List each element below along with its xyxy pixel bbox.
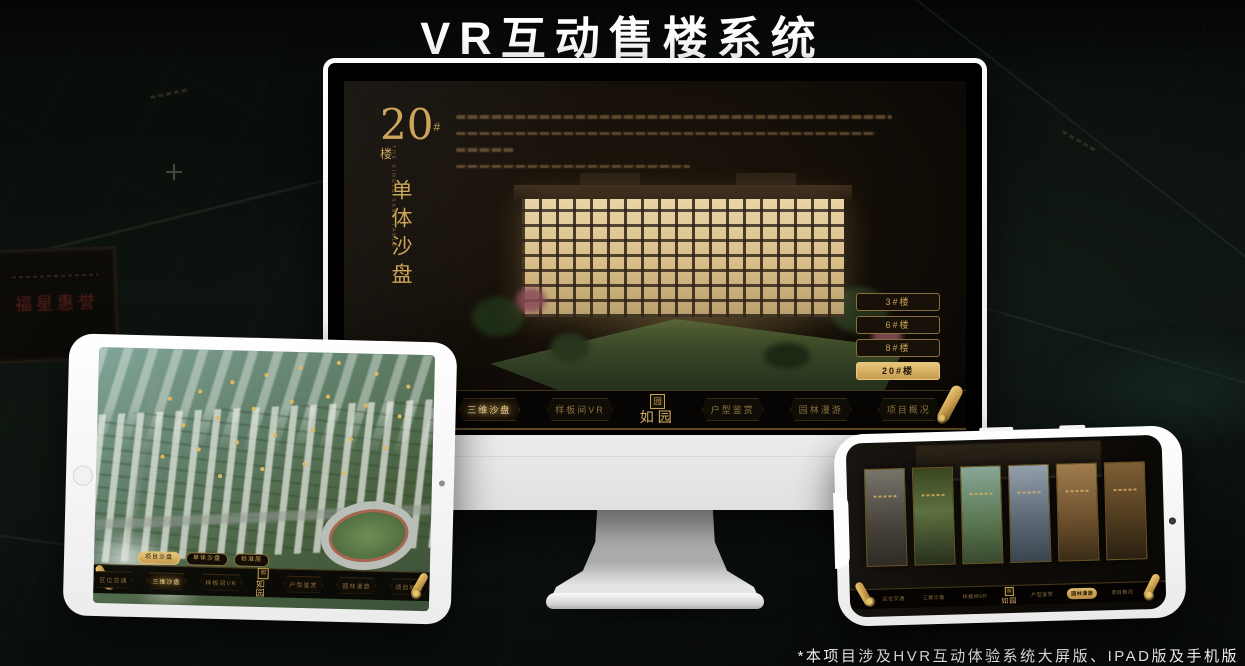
menu-item-showroom-vr[interactable]: 样板间VR bbox=[959, 591, 992, 603]
brand-logo[interactable]: 园 如园 bbox=[255, 567, 270, 598]
menu-item-unit-plans[interactable]: 户型鉴赏 bbox=[1027, 589, 1057, 601]
building-3d-model[interactable] bbox=[522, 199, 844, 317]
brand-seal-icon: 园 bbox=[1004, 586, 1013, 595]
menu-item-garden-roam[interactable]: 园林漫游 bbox=[790, 398, 852, 421]
brand-name: 如园 bbox=[255, 580, 270, 598]
floor-button-20[interactable]: 20#楼 bbox=[856, 362, 940, 380]
phone-volume-button[interactable] bbox=[979, 427, 1013, 432]
floor-button-group: 3#楼 6#楼 8#楼 20#楼 bbox=[856, 293, 940, 380]
building-number-markers[interactable] bbox=[168, 397, 172, 401]
tablet-home-button[interactable] bbox=[73, 465, 93, 485]
promo-page: 福星惠誉 VR互动售楼系统 20#楼 单体沙盘 THE SINGLE SAND … bbox=[0, 0, 1245, 666]
brand-seal-icon: 园 bbox=[258, 567, 269, 578]
block-number: 20 bbox=[380, 100, 433, 149]
floor-button-8[interactable]: 8#楼 bbox=[856, 339, 940, 357]
brand-name: 如园 bbox=[640, 411, 676, 425]
block-subtitle-en: THE SINGLE SAND TABLE bbox=[390, 145, 396, 249]
menu-item-3d-sandbox[interactable]: 三维沙盘 bbox=[458, 398, 520, 421]
phone-menu-bar: 区位交通 三维沙盘 样板间VR 园 如园 户型鉴赏 园林漫游 项目概况 bbox=[850, 581, 1166, 610]
menu-item-showroom-vr[interactable]: 样板间VR bbox=[199, 573, 243, 591]
menu-item-unit-plans[interactable]: 户型鉴赏 bbox=[283, 575, 323, 593]
brand-name: 如园 bbox=[1001, 597, 1017, 604]
panorama-card[interactable] bbox=[1008, 464, 1052, 563]
block-description-lines bbox=[456, 115, 892, 181]
phone-screen: 区位交通 三维沙盘 样板间VR 园 如园 户型鉴赏 园林漫游 项目概况 bbox=[846, 435, 1167, 618]
footnote: *本项目涉及HVR互动体验系统大屏版、IPAD版及手机版 bbox=[798, 645, 1239, 666]
brand-logo[interactable]: 园 如园 bbox=[1001, 586, 1017, 604]
scroll-ornament-icon[interactable] bbox=[854, 581, 874, 608]
monitor-stand-base bbox=[546, 593, 764, 609]
tree bbox=[550, 333, 590, 363]
menu-item-unit-plans[interactable]: 户型鉴赏 bbox=[702, 398, 764, 421]
scroll-ornament-icon[interactable] bbox=[935, 384, 964, 425]
phone-power-button[interactable] bbox=[1059, 425, 1085, 430]
menu-item-3d-sandbox[interactable]: 三维沙盘 bbox=[146, 572, 186, 590]
tablet-screen: 项目沙盘 单体沙盘 标准层 区位交通 三维沙盘 样板间VR 园 如园 户型鉴赏 … bbox=[93, 347, 435, 611]
compass-star-icon bbox=[166, 164, 182, 180]
floor-button-6[interactable]: 6#楼 bbox=[856, 316, 940, 334]
phone-camera-icon bbox=[1169, 517, 1176, 524]
panorama-card[interactable] bbox=[960, 465, 1004, 564]
tree bbox=[764, 343, 810, 369]
panorama-card[interactable] bbox=[912, 467, 956, 566]
menu-item-3d-sandbox[interactable]: 三维沙盘 bbox=[919, 592, 949, 604]
tablet-device: 项目沙盘 单体沙盘 标准层 区位交通 三维沙盘 样板间VR 园 如园 户型鉴赏 … bbox=[63, 333, 458, 624]
panorama-card-row bbox=[864, 461, 1148, 567]
tablet-tab-single-sandbox[interactable]: 单体沙盘 bbox=[186, 552, 228, 566]
panorama-card[interactable] bbox=[1056, 463, 1100, 562]
panorama-card[interactable] bbox=[864, 468, 908, 567]
plaque-text: 福星惠誉 bbox=[6, 287, 107, 315]
brand-seal-icon: 园 bbox=[650, 394, 665, 409]
menu-item-project-overview[interactable]: 项目概况 bbox=[1107, 586, 1137, 598]
scroll-ornament-icon[interactable] bbox=[1142, 573, 1161, 600]
tablet-tab-standard-floor[interactable]: 标准层 bbox=[234, 553, 269, 567]
menu-item-project-overview[interactable]: 项目概况 bbox=[878, 398, 940, 421]
tablet-camera-icon bbox=[439, 480, 445, 486]
phone-device: 区位交通 三维沙盘 样板间VR 园 如园 户型鉴赏 园林漫游 项目概况 bbox=[833, 425, 1186, 627]
menu-item-showroom-vr[interactable]: 样板间VR bbox=[546, 398, 614, 421]
tree-pink bbox=[516, 287, 546, 313]
phone-notch bbox=[833, 493, 850, 569]
tablet-tab-project-sandbox[interactable]: 项目沙盘 bbox=[138, 551, 180, 565]
menu-item-location[interactable]: 区位交通 bbox=[93, 570, 133, 588]
menu-item-garden-roam[interactable]: 园林漫游 bbox=[336, 576, 376, 594]
panorama-card[interactable] bbox=[1104, 461, 1148, 560]
floor-button-3[interactable]: 3#楼 bbox=[856, 293, 940, 311]
brand-logo[interactable]: 园 如园 bbox=[640, 394, 676, 425]
menu-item-garden-roam[interactable]: 园林漫游 bbox=[1067, 588, 1097, 600]
menu-item-location[interactable]: 区位交通 bbox=[879, 593, 909, 605]
